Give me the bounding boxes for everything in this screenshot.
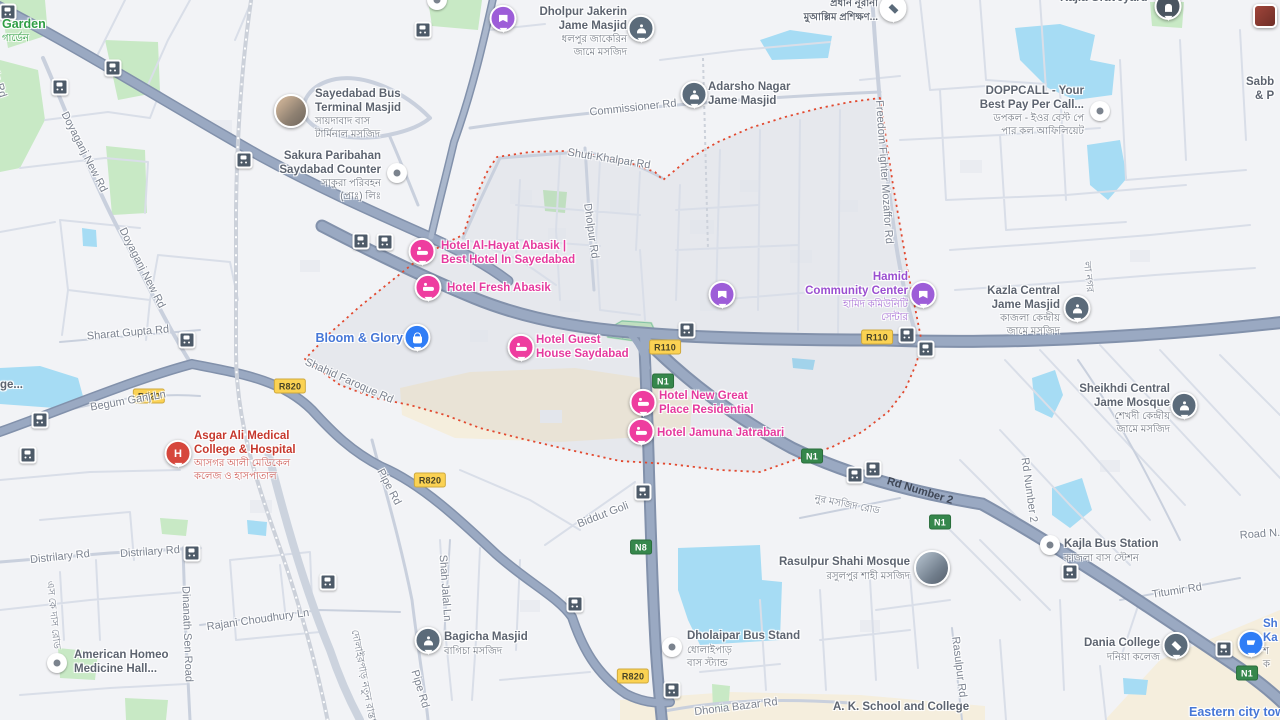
mosque-icon xyxy=(637,28,646,33)
hotel-pin[interactable] xyxy=(409,238,436,265)
bus-stop-icon[interactable] xyxy=(1062,564,1079,581)
poi-hamid-community-center[interactable]: Hamid Community Center হামিদ কমিউনিটি সে… xyxy=(805,271,908,324)
poi-sakura-counter[interactable]: Sakura Paribahan Saydabad Counter সাকুরা… xyxy=(279,150,381,203)
poi-hotel-guest-house[interactable]: Hotel Guest House Saydabad xyxy=(536,334,629,361)
poi-store-right-edge[interactable]: Sh Ka শ ক xyxy=(1263,618,1278,671)
place-dot-icon[interactable] xyxy=(662,637,682,657)
community-center-pin[interactable] xyxy=(490,5,517,32)
bus-stop-icon[interactable] xyxy=(679,322,696,339)
poi-garden[interactable]: Garden গার্ডেন xyxy=(2,18,46,45)
bus-stop-icon[interactable] xyxy=(1216,641,1233,658)
place-dot-icon[interactable] xyxy=(47,653,67,673)
route-shield-n1: N1 xyxy=(652,374,674,389)
tombstone-icon xyxy=(1165,3,1172,11)
poi-dania-college[interactable]: Dania College দনিয়া কলেজ xyxy=(1084,637,1160,664)
hotel-pin[interactable] xyxy=(628,418,655,445)
photo-thumbnail-icon[interactable] xyxy=(1253,4,1277,28)
graduation-cap-icon xyxy=(1171,640,1181,650)
banner-icon xyxy=(718,290,727,298)
mosque-pin[interactable] xyxy=(681,81,708,108)
bus-stop-icon[interactable] xyxy=(567,596,584,613)
place-dot-icon[interactable] xyxy=(1090,101,1110,121)
poi-sabb[interactable]: Sabb & P xyxy=(1246,76,1274,103)
route-shield-r820: R820 xyxy=(274,379,306,394)
bus-stop-icon[interactable] xyxy=(918,341,935,358)
mosque-pin[interactable] xyxy=(628,15,655,42)
bus-stop-icon[interactable] xyxy=(236,152,253,169)
bus-stop-icon[interactable] xyxy=(865,461,882,478)
poi-adarsho-nagar-masjid[interactable]: Adarsho Nagar Jame Masjid xyxy=(708,81,790,108)
bus-stop-icon[interactable] xyxy=(635,484,652,501)
mosque-icon xyxy=(1073,308,1082,313)
shopping-pin[interactable] xyxy=(404,324,431,351)
bus-stop-icon[interactable] xyxy=(52,79,69,96)
mosque-pin[interactable] xyxy=(1064,295,1091,322)
bed-icon xyxy=(423,286,434,290)
hospital-pin[interactable] xyxy=(165,440,192,467)
photo-thumbnail-icon[interactable] xyxy=(274,94,308,128)
bus-stop-icon[interactable] xyxy=(32,412,49,429)
poi-rasulpur-mosque[interactable]: Rasulpur Shahi Mosque রসুলপুর শাহী মসজিদ xyxy=(779,556,910,583)
graduation-cap-icon xyxy=(888,3,898,13)
poi-ak-school[interactable]: A. K. School and College xyxy=(833,701,969,715)
route-shield-r820: R820 xyxy=(414,473,446,488)
bus-stop-icon[interactable] xyxy=(184,545,201,562)
mosque-icon xyxy=(690,94,699,99)
poi-kazla-central-masjid[interactable]: Kazla Central Jame Masjid কাজলা কেন্দ্রী… xyxy=(987,285,1060,338)
hotel-pin[interactable] xyxy=(415,274,442,301)
hamid-community-center-pin[interactable] xyxy=(910,281,937,308)
route-shield-r110: R110 xyxy=(861,330,893,345)
route-shield-n1: N1 xyxy=(1236,666,1258,681)
poi-asgar-ali-hospital[interactable]: Asgar Ali Medical College & Hospital আসগ… xyxy=(194,430,296,483)
poi-bagicha-masjid[interactable]: Bagicha Masjid বাগিচা মসজিদ xyxy=(444,631,528,658)
route-shield-r820: R820 xyxy=(617,669,649,684)
poi-kajla-graveyard[interactable]: Kajla Graveyard xyxy=(1060,0,1148,6)
poi-bloom-glory[interactable]: Bloom & Glory xyxy=(315,332,403,346)
bus-stop-icon[interactable] xyxy=(899,327,916,344)
bed-icon xyxy=(636,430,647,434)
route-shield-n1: N1 xyxy=(801,449,823,464)
photo-thumbnail-icon[interactable] xyxy=(914,550,950,586)
bed-icon xyxy=(638,401,649,405)
map-canvas[interactable]: R110 R110 R820 R820 R820 R820 N1 N1 N1 N… xyxy=(0,0,1280,720)
hotel-pin[interactable] xyxy=(508,334,535,361)
mosque-icon xyxy=(1180,405,1189,410)
bus-stop-icon[interactable] xyxy=(415,22,432,39)
bus-stop-icon[interactable] xyxy=(320,574,337,591)
shopping-bag-icon xyxy=(413,336,422,343)
poi-hotel-fresh[interactable]: Hotel Fresh Abasik xyxy=(447,282,551,296)
store-pin[interactable] xyxy=(1238,630,1265,657)
route-shield-n1: N1 xyxy=(929,515,951,530)
poi-nurani-training[interactable]: প্রধান নূরানী মুআল্লিম প্রশিক্ষণ... xyxy=(804,0,878,24)
road-label-nagar: লা নগর xyxy=(1077,261,1097,294)
banner-icon xyxy=(499,14,508,22)
college-pin[interactable] xyxy=(1163,632,1190,659)
poi-dholpur-jakerin-masjid[interactable]: Dholpur Jakerin Jame Masjid ধলপুর জাকেরি… xyxy=(539,6,627,59)
banner-icon xyxy=(919,290,928,298)
bus-stop-icon[interactable] xyxy=(664,682,681,699)
mosque-pin[interactable] xyxy=(1171,392,1198,419)
mosque-icon xyxy=(424,640,433,645)
route-shield-n8: N8 xyxy=(630,540,652,555)
bus-stop-icon[interactable] xyxy=(353,233,370,250)
bed-icon xyxy=(417,250,428,254)
place-dot-icon[interactable] xyxy=(1040,535,1060,555)
poi-american-homeo[interactable]: American Homeo Medicine Hall... xyxy=(74,649,169,676)
poi-sayedabad-terminal-masjid[interactable]: Sayedabad Bus Terminal Masjid সায়দাবাদ … xyxy=(315,88,401,141)
poi-kajla-bus-station[interactable]: Kajla Bus Station কাজলা বাস স্টেশন xyxy=(1064,538,1159,565)
community-center-pin[interactable] xyxy=(709,281,736,308)
poi-hotel-new-great[interactable]: Hotel New Great Place Residential xyxy=(659,390,754,417)
poi-dholaipar-bus-stand[interactable]: Dholaipar Bus Stand ধোলাইপাড় বাস স্ট্যা… xyxy=(687,630,800,670)
bed-icon xyxy=(516,346,527,350)
poi-sheikhdi-mosque[interactable]: Sheikhdi Central Jame Mosque শেখদী কেন্দ… xyxy=(1079,383,1170,436)
place-dot-icon[interactable] xyxy=(387,163,407,183)
poi-hotel-jamuna[interactable]: Hotel Jamuna Jatrabari xyxy=(657,427,784,441)
bus-stop-icon[interactable] xyxy=(179,332,196,349)
bus-stop-icon[interactable] xyxy=(847,467,864,484)
route-shield-r110: R110 xyxy=(649,340,681,355)
hotel-pin[interactable] xyxy=(630,389,657,416)
shopping-cart-icon xyxy=(1247,640,1256,645)
bus-stop-icon[interactable] xyxy=(105,60,122,77)
bus-stop-icon[interactable] xyxy=(20,447,37,464)
bus-stop-icon[interactable] xyxy=(377,234,394,251)
poi-eastern-city[interactable]: Eastern city towe xyxy=(1189,706,1280,720)
poi-ge-cut-label: ge... xyxy=(0,379,23,393)
mosque-pin[interactable] xyxy=(415,627,442,654)
poi-hotel-al-hayat[interactable]: Hotel Al-Hayat Abasik | Best Hotel In Sa… xyxy=(441,240,575,267)
poi-doppcall[interactable]: DOPPCALL - Your Best Pay Per Call... ডপক… xyxy=(980,85,1084,138)
